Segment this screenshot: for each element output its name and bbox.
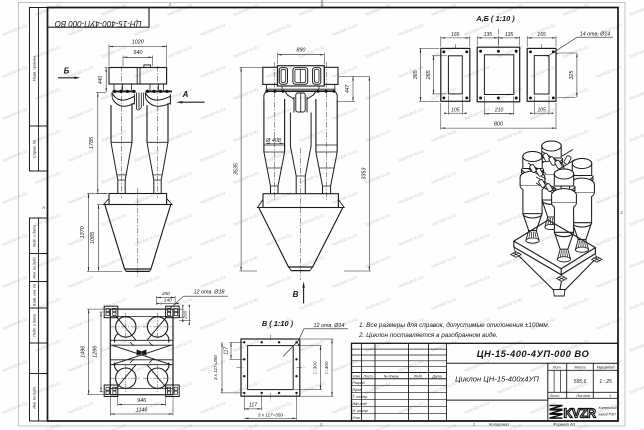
- svg-text:Масштаб: Масштаб: [597, 366, 616, 370]
- svg-text:12 отв. Ø14: 12 отв. Ø14: [314, 323, 345, 329]
- svg-text:Подп. и дата: Подп. и дата: [33, 314, 37, 337]
- svg-text:1020: 1020: [132, 39, 144, 45]
- svg-text:200: 200: [183, 311, 189, 320]
- svg-text:Инв. № подл.: Инв. № подл.: [33, 386, 37, 408]
- svg-text:265: 265: [426, 69, 432, 80]
- svg-text:540: 540: [133, 50, 142, 56]
- svg-text:1785: 1785: [89, 136, 95, 149]
- svg-text:14 отв. Ø14: 14 отв. Ø14: [580, 32, 610, 38]
- svg-text:□ 300: □ 300: [312, 361, 318, 374]
- svg-text:1005: 1005: [90, 231, 96, 244]
- svg-text:946: 946: [137, 398, 146, 404]
- svg-text:200: 200: [161, 291, 170, 297]
- svg-text:№ докум.: № докум.: [384, 374, 400, 378]
- svg-text:325: 325: [569, 70, 575, 80]
- svg-text:Справ. №: Справ. №: [32, 139, 37, 158]
- svg-text:Нач.отд: Нач.отд: [353, 402, 367, 406]
- svg-text:440: 440: [98, 76, 104, 85]
- svg-text:А: А: [41, 205, 45, 210]
- svg-text:Циклон ЦН-15-400х4УП: Циклон ЦН-15-400х4УП: [455, 375, 539, 384]
- svg-text:365: 365: [413, 69, 419, 79]
- svg-text:Подп.: Подп.: [414, 374, 424, 378]
- svg-text:1146: 1146: [136, 408, 148, 414]
- svg-text:135: 135: [484, 32, 493, 38]
- svg-text:105: 105: [537, 107, 546, 113]
- svg-text:1296: 1296: [93, 346, 99, 358]
- svg-text:ЦН-15-400-4УП-000 ВО: ЦН-15-400-4УП-000 ВО: [55, 19, 142, 28]
- svg-text:447: 447: [345, 84, 351, 93]
- svg-text:1: 1: [609, 394, 611, 398]
- svg-text:Б: Б: [64, 67, 70, 76]
- svg-text:1 : 25: 1 : 25: [599, 379, 612, 385]
- svg-text:1370: 1370: [80, 226, 86, 238]
- svg-text:2. Циклон поставляется в разо: 2. Циклон поставляется в разобранном вид…: [358, 331, 498, 339]
- svg-text:Лит.: Лит.: [552, 366, 562, 370]
- svg-text:105: 105: [451, 107, 460, 113]
- svg-text:А: А: [182, 90, 189, 99]
- svg-text:завод РЗП: завод РЗП: [598, 413, 617, 417]
- svg-text:Подп. и дата: Подп. и дата: [33, 225, 37, 248]
- svg-text:ЦН-15-400-4УП-000 ВО: ЦН-15-400-4УП-000 ВО: [477, 348, 590, 359]
- svg-text:Копельный: Копельный: [599, 406, 617, 410]
- svg-text:Пров.: Пров.: [353, 388, 362, 392]
- svg-text:Масса: Масса: [574, 366, 585, 370]
- svg-text:Дата: Дата: [431, 374, 441, 378]
- svg-text:800: 800: [494, 121, 503, 127]
- svg-text:117: 117: [249, 402, 257, 408]
- svg-text:А,Б ( 1:10 ): А,Б ( 1:10 ): [475, 14, 515, 23]
- svg-text:1. Все размеры для справок, д: 1. Все размеры для справок, допустимые о…: [359, 321, 550, 329]
- svg-text:Копировал: Копировал: [489, 422, 510, 427]
- svg-text:140: 140: [164, 298, 172, 304]
- svg-text:В ( 1:10 ): В ( 1:10 ): [262, 319, 294, 328]
- svg-text:3535: 3535: [234, 162, 240, 175]
- svg-text:890: 890: [296, 48, 305, 54]
- svg-text:Лист: Лист: [362, 374, 372, 378]
- svg-text:2: 2: [168, 2, 172, 7]
- svg-text:Инв. № дубл.: Инв. № дубл.: [33, 256, 37, 278]
- svg-text:Т. контр.: Т. контр.: [353, 395, 369, 399]
- svg-text:□ 400: □ 400: [324, 361, 330, 374]
- svg-text:Изм: Изм: [353, 374, 360, 378]
- svg-text:В: В: [293, 290, 299, 299]
- svg-text:Листов: Листов: [575, 394, 590, 398]
- svg-text:KVZR: KVZR: [563, 407, 596, 421]
- svg-text:Перв. примен.: Перв. примен.: [32, 55, 37, 82]
- svg-text:Лист: Лист: [549, 394, 560, 398]
- svg-text:3 х 117=350: 3 х 117=350: [213, 355, 218, 381]
- svg-text:135: 135: [505, 32, 514, 38]
- svg-text:Разраб.: Разраб.: [353, 381, 366, 385]
- svg-text:1: 1: [473, 422, 475, 427]
- svg-text:3353: 3353: [362, 168, 368, 180]
- svg-text:140: 140: [176, 309, 182, 317]
- svg-text:117: 117: [223, 347, 229, 355]
- svg-text:3 х 117=350: 3 х 117=350: [258, 412, 284, 417]
- svg-text:Утв.: Утв.: [353, 416, 361, 420]
- svg-text:165: 165: [451, 32, 460, 38]
- svg-text:1496: 1496: [80, 346, 86, 358]
- svg-text:Взам. инв. №: Взам. инв. №: [33, 284, 37, 306]
- svg-text:12 отв. Ø18: 12 отв. Ø18: [194, 290, 225, 296]
- svg-text:595,6: 595,6: [574, 379, 587, 385]
- svg-text:165: 165: [537, 32, 546, 38]
- svg-text:Формат А3: Формат А3: [553, 422, 576, 427]
- svg-text:210: 210: [494, 107, 504, 113]
- svg-text:Н. контр.: Н. контр.: [353, 409, 369, 413]
